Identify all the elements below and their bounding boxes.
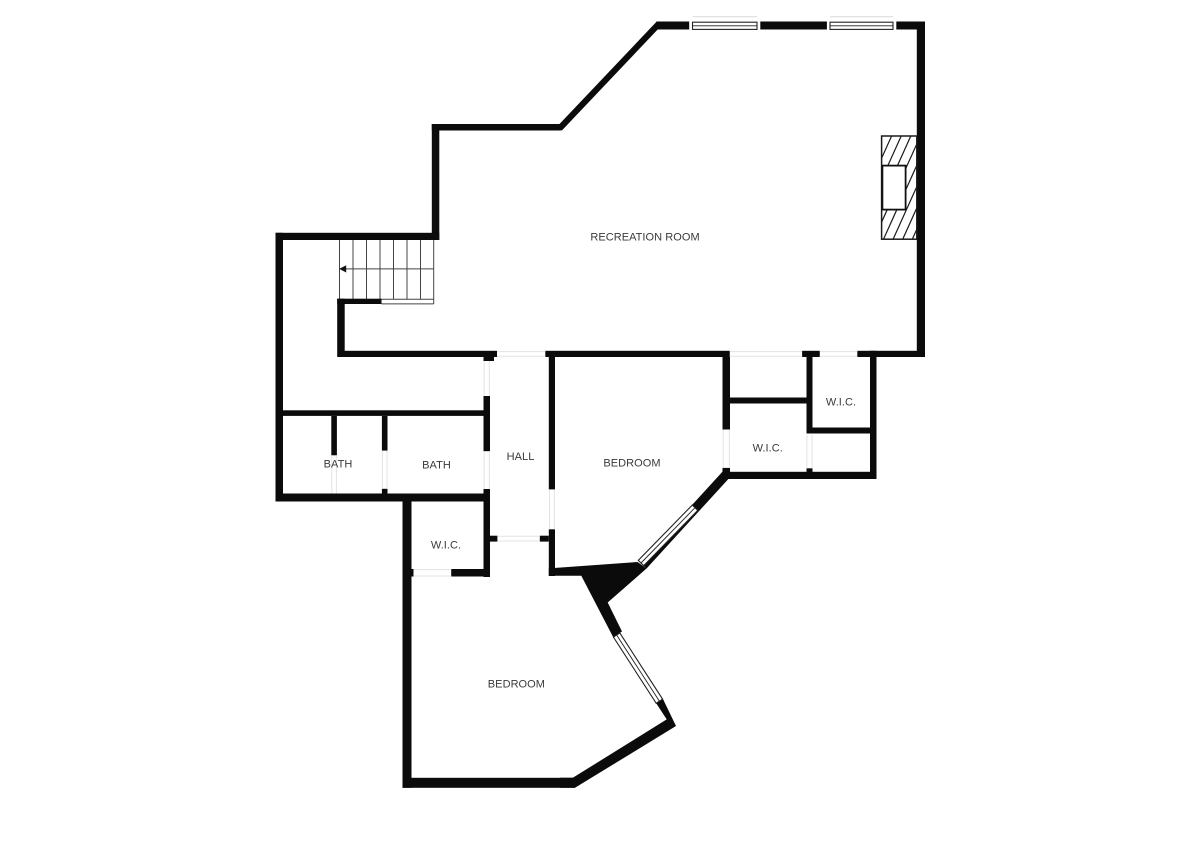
svg-text:BATH: BATH [324,459,353,471]
svg-text:W.I.C.: W.I.C. [753,442,783,454]
svg-text:BEDROOM: BEDROOM [603,457,660,469]
svg-text:W.I.C.: W.I.C. [431,540,461,552]
svg-text:BEDROOM: BEDROOM [488,679,545,691]
svg-text:BATH: BATH [422,459,451,471]
svg-text:RECREATION ROOM: RECREATION ROOM [590,231,699,243]
svg-text:HALL: HALL [507,451,535,463]
svg-text:W.I.C.: W.I.C. [826,397,856,409]
